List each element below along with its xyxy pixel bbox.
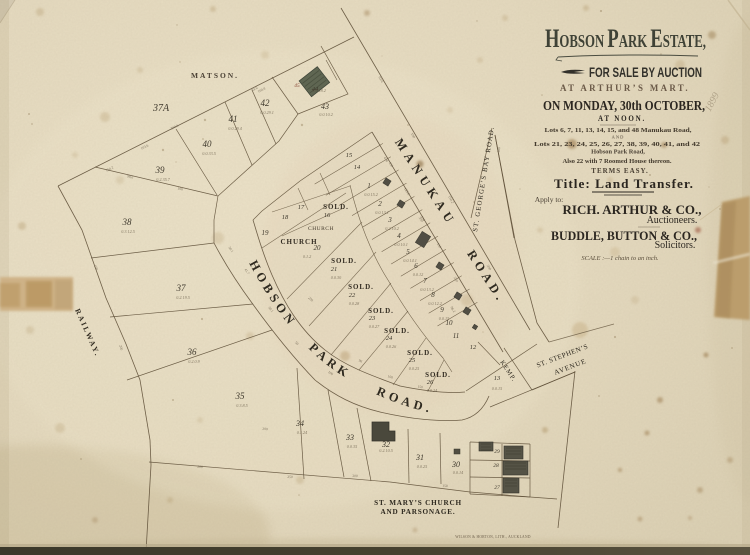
svg-text:Hobson Park Road,: Hobson Park Road, bbox=[591, 149, 645, 156]
svg-text:CHURCH: CHURCH bbox=[308, 226, 334, 232]
svg-text:0.0.10.2: 0.0.10.2 bbox=[319, 112, 333, 117]
svg-text:9: 9 bbox=[440, 306, 444, 314]
svg-text:21: 21 bbox=[331, 266, 338, 273]
svg-text:4: 4 bbox=[397, 232, 401, 240]
svg-text:200: 200 bbox=[262, 427, 268, 431]
svg-text:150: 150 bbox=[417, 385, 423, 390]
svg-text:45: 45 bbox=[294, 82, 300, 89]
svg-text:FOR SALE BY AUCTION: FOR SALE BY AUCTION bbox=[589, 64, 702, 80]
svg-text:29: 29 bbox=[494, 449, 500, 455]
svg-text:26: 26 bbox=[427, 379, 434, 386]
svg-text:0.0.35: 0.0.35 bbox=[347, 444, 357, 449]
svg-text:150: 150 bbox=[442, 484, 448, 488]
svg-text:27: 27 bbox=[494, 485, 500, 491]
svg-text:19: 19 bbox=[262, 229, 270, 237]
svg-text:17: 17 bbox=[298, 204, 305, 211]
svg-text:Lots 21, 23, 24, 25, 26, 27, 3: Lots 21, 23, 24, 25, 26, 27, 38, 39, 40,… bbox=[534, 141, 700, 148]
svg-text:37: 37 bbox=[176, 283, 187, 293]
svg-text:37A: 37A bbox=[152, 103, 170, 114]
svg-text:36: 36 bbox=[187, 347, 198, 357]
svg-text:0.0.10.1: 0.0.10.1 bbox=[394, 242, 408, 247]
svg-text:6: 6 bbox=[414, 262, 418, 270]
svg-text:0.0.29.4: 0.0.29.4 bbox=[228, 126, 242, 131]
svg-text:16: 16 bbox=[324, 212, 331, 219]
svg-text:0.0.14: 0.0.14 bbox=[453, 470, 463, 475]
svg-text:250: 250 bbox=[287, 475, 293, 479]
svg-text:35: 35 bbox=[235, 391, 246, 401]
svg-text:0.0.15: 0.0.15 bbox=[439, 316, 449, 321]
svg-text:0.0.18.2: 0.0.18.2 bbox=[312, 88, 326, 93]
svg-text:Solicitors.: Solicitors. bbox=[655, 240, 696, 251]
svg-text:8: 8 bbox=[431, 291, 435, 299]
svg-text:0.0.27: 0.0.27 bbox=[369, 324, 380, 329]
svg-text:SOLD.: SOLD. bbox=[425, 371, 451, 379]
svg-text:SOLD.: SOLD. bbox=[323, 203, 349, 211]
svg-text:0.0.14.1: 0.0.14.1 bbox=[403, 258, 417, 263]
svg-text:0.0.12.2: 0.0.12.2 bbox=[428, 301, 442, 306]
svg-text:Apply to:: Apply to: bbox=[535, 195, 564, 204]
svg-text:1: 1 bbox=[367, 182, 371, 190]
svg-text:0.3.8.5: 0.3.8.5 bbox=[236, 403, 248, 408]
svg-text:18: 18 bbox=[282, 214, 289, 221]
svg-text:41: 41 bbox=[229, 114, 238, 124]
svg-text:Title: Land Transfer.: Title: Land Transfer. bbox=[554, 176, 694, 191]
svg-text:25: 25 bbox=[409, 357, 416, 364]
svg-text:0.0.13.2: 0.0.13.2 bbox=[420, 287, 434, 292]
svg-text:Auctioneers.: Auctioneers. bbox=[647, 215, 698, 226]
svg-text:38: 38 bbox=[122, 217, 133, 227]
svg-text:0.0.28: 0.0.28 bbox=[349, 301, 360, 306]
svg-text:SCALE :—1 chain to an inch.: SCALE :—1 chain to an inch. bbox=[581, 255, 659, 262]
svg-text:0.2.10.5: 0.2.10.5 bbox=[379, 448, 393, 453]
svg-text:30: 30 bbox=[451, 460, 460, 469]
svg-text:0.0.25: 0.0.25 bbox=[417, 464, 427, 469]
svg-text:AND: AND bbox=[612, 135, 625, 140]
svg-text:5: 5 bbox=[406, 248, 410, 256]
svg-text:7: 7 bbox=[423, 277, 427, 285]
svg-text:11: 11 bbox=[453, 332, 459, 340]
svg-text:33: 33 bbox=[345, 433, 354, 442]
svg-text:0.0.30: 0.0.30 bbox=[331, 275, 342, 280]
svg-text:42: 42 bbox=[261, 98, 271, 108]
svg-text:TERMS EASY.: TERMS EASY. bbox=[591, 167, 648, 175]
svg-text:0.2.0.9: 0.2.0.9 bbox=[188, 359, 200, 364]
svg-text:15: 15 bbox=[346, 152, 353, 159]
svg-text:34: 34 bbox=[295, 419, 304, 428]
svg-text:0.2.35.7: 0.2.35.7 bbox=[156, 177, 171, 182]
svg-text:SOLD.: SOLD. bbox=[407, 349, 433, 357]
svg-text:0.2.10.2: 0.2.10.2 bbox=[385, 226, 399, 231]
svg-text:28: 28 bbox=[493, 463, 499, 469]
svg-text:ST. MARY’S CHURCH: ST. MARY’S CHURCH bbox=[374, 499, 462, 507]
svg-text:0.0.29.1: 0.0.29.1 bbox=[260, 110, 274, 115]
svg-text:SOLD.: SOLD. bbox=[331, 257, 357, 265]
svg-text:200: 200 bbox=[197, 465, 203, 469]
svg-text:0.0.26: 0.0.26 bbox=[386, 344, 397, 349]
svg-text:40: 40 bbox=[203, 139, 213, 149]
svg-text:0.0.24: 0.0.24 bbox=[427, 388, 437, 393]
svg-text:0.0.13.1: 0.0.13.1 bbox=[375, 210, 389, 215]
svg-text:CHURCH: CHURCH bbox=[280, 238, 317, 246]
svg-text:MATSON.: MATSON. bbox=[191, 71, 239, 80]
svg-text:0.1.2: 0.1.2 bbox=[303, 254, 311, 259]
svg-text:24: 24 bbox=[386, 335, 393, 342]
svg-text:SOLD.: SOLD. bbox=[348, 283, 374, 291]
svg-text:13: 13 bbox=[494, 375, 501, 382]
svg-text:SOLD.: SOLD. bbox=[384, 327, 410, 335]
svg-text:Also 22 with 7 Roomed House th: Also 22 with 7 Roomed House thereon. bbox=[563, 158, 672, 165]
svg-text:0.1.24: 0.1.24 bbox=[297, 430, 307, 435]
svg-text:AND PARSONAGE.: AND PARSONAGE. bbox=[381, 508, 456, 516]
svg-text:300: 300 bbox=[352, 474, 358, 478]
svg-text:22: 22 bbox=[349, 292, 356, 299]
svg-text:3: 3 bbox=[387, 216, 392, 224]
svg-text:0.0.15: 0.0.15 bbox=[492, 386, 502, 391]
svg-text:23: 23 bbox=[369, 315, 376, 322]
svg-text:12: 12 bbox=[470, 344, 477, 351]
svg-text:0.0.33.5: 0.0.33.5 bbox=[202, 151, 216, 156]
svg-text:AT NOON.: AT NOON. bbox=[598, 114, 646, 123]
svg-text:14: 14 bbox=[354, 164, 361, 171]
svg-text:0.0.15.2: 0.0.15.2 bbox=[364, 192, 378, 197]
svg-text:Lots 6, 7, 11, 13, 14, 15, and: Lots 6, 7, 11, 13, 14, 15, and 48 Manuka… bbox=[545, 127, 692, 134]
svg-text:ON MONDAY, 30th OCTOBER,: ON MONDAY, 30th OCTOBER, bbox=[543, 98, 705, 113]
svg-text:AT ARTHUR’S MART.: AT ARTHUR’S MART. bbox=[560, 84, 690, 94]
svg-text:43: 43 bbox=[321, 102, 329, 111]
svg-text:SOLD.: SOLD. bbox=[368, 307, 394, 315]
svg-text:0.2.19.5: 0.2.19.5 bbox=[176, 295, 190, 300]
svg-text:31: 31 bbox=[415, 453, 424, 462]
svg-text:39: 39 bbox=[155, 165, 166, 175]
svg-text:0.0.12: 0.0.12 bbox=[413, 272, 423, 277]
svg-text:0.3.12.5: 0.3.12.5 bbox=[121, 229, 135, 234]
svg-text:0.0.25: 0.0.25 bbox=[409, 366, 419, 371]
svg-text:2: 2 bbox=[378, 200, 382, 208]
